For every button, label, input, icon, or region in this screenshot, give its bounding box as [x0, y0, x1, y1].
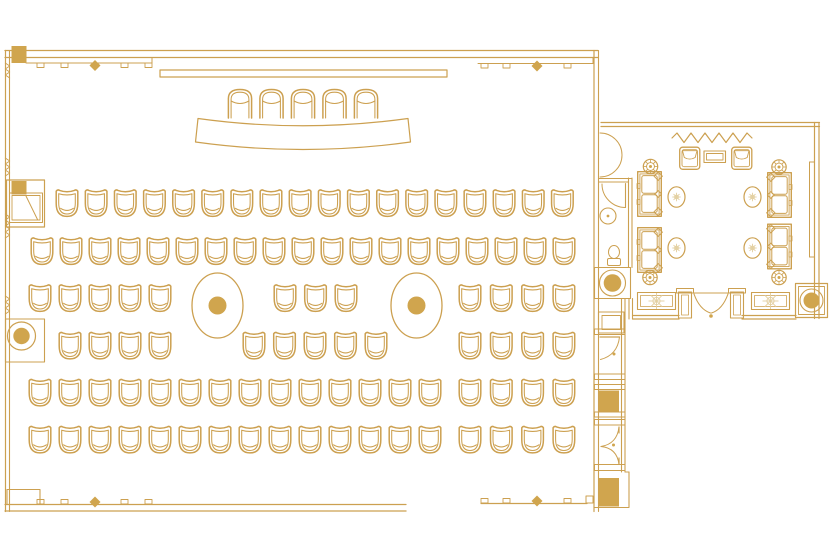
- path: [326, 101, 344, 104]
- path: [294, 92, 312, 118]
- path: [355, 256, 368, 258]
- rect: [772, 247, 787, 265]
- door-knob: [613, 353, 616, 356]
- projection-screen: [160, 70, 447, 77]
- path: [268, 256, 281, 258]
- lounge-sofa: [767, 173, 792, 218]
- theater-seat: [234, 238, 256, 264]
- path: [394, 445, 407, 447]
- path: [498, 208, 511, 210]
- path: [339, 351, 352, 353]
- path: [278, 351, 291, 353]
- toilet-tank: [608, 259, 621, 266]
- path: [495, 398, 508, 400]
- table-medallion: [649, 293, 665, 309]
- theater-seat: [419, 426, 441, 452]
- track-tab: [564, 499, 571, 504]
- theater-seat: [491, 332, 513, 358]
- path: [124, 303, 137, 305]
- head-table-chair: [228, 90, 251, 119]
- path: [231, 101, 249, 104]
- flower-medallion: [772, 270, 786, 284]
- theater-seating: [29, 190, 575, 453]
- path: [558, 398, 571, 400]
- theater-seat: [408, 238, 430, 264]
- theater-seat: [459, 285, 481, 311]
- path: [177, 208, 190, 210]
- theater-seat: [379, 238, 401, 264]
- path: [206, 208, 219, 210]
- theater-seat: [239, 426, 261, 452]
- door-frame: [595, 374, 626, 380]
- head-table-chair: [354, 90, 377, 119]
- path: [326, 92, 344, 118]
- theater-seat: [269, 426, 291, 452]
- table-medallion: [672, 193, 680, 201]
- door-arc: [601, 447, 619, 465]
- theater-seat: [491, 379, 513, 405]
- path: [181, 256, 194, 258]
- theater-seat: [553, 238, 575, 264]
- theater-seat: [119, 426, 141, 452]
- double-door-arc: [600, 133, 622, 155]
- theater-seat: [437, 238, 459, 264]
- entrance-pilaster: [682, 295, 689, 315]
- path: [94, 398, 107, 400]
- theater-seat: [522, 190, 544, 216]
- path: [352, 208, 365, 210]
- theater-seat: [552, 190, 574, 216]
- track-tab: [503, 64, 510, 69]
- theater-seat: [435, 190, 457, 216]
- theater-seat: [89, 238, 111, 264]
- head-table: [196, 119, 411, 150]
- sink-drain: [607, 215, 610, 218]
- path: [558, 351, 571, 353]
- theater-seat: [59, 332, 81, 358]
- path: [235, 208, 248, 210]
- lounge-sofa: [637, 172, 662, 217]
- theater-seat: [149, 426, 171, 452]
- theater-seat: [179, 426, 201, 452]
- theater-seat: [359, 379, 381, 405]
- path: [184, 445, 197, 447]
- rect: [642, 232, 657, 250]
- rect: [768, 173, 792, 218]
- theater-seat: [491, 285, 513, 311]
- flower-medallion: [643, 270, 657, 284]
- path: [294, 101, 312, 104]
- theater-seat: [260, 190, 282, 216]
- theater-seat: [89, 379, 111, 405]
- theater-seat: [60, 238, 82, 264]
- path: [154, 351, 167, 353]
- theater-seat: [292, 238, 314, 264]
- curtain-tieback: [709, 314, 713, 318]
- path: [154, 445, 167, 447]
- theater-seat: [119, 332, 141, 358]
- oval-column-core: [209, 297, 227, 315]
- lounge-sofa: [637, 228, 662, 273]
- path: [526, 445, 539, 447]
- theater-seat: [176, 238, 198, 264]
- path: [500, 256, 513, 258]
- flower-medallion: [643, 159, 657, 173]
- path: [244, 445, 257, 447]
- theater-seat: [522, 332, 544, 358]
- theater-seat: [289, 190, 311, 216]
- theater-seat: [553, 332, 575, 358]
- coat-rack-zigzag: [672, 133, 752, 143]
- path: [381, 208, 394, 210]
- path: [94, 256, 107, 258]
- theater-seat: [31, 238, 53, 264]
- door-knob: [612, 444, 615, 447]
- oval-column-core: [408, 297, 426, 315]
- theater-seat: [89, 332, 111, 358]
- path: [94, 445, 107, 447]
- path: [263, 101, 281, 104]
- track-tab: [37, 63, 44, 68]
- theater-seat: [149, 379, 171, 405]
- theater-seat: [359, 426, 381, 452]
- theater-seat: [173, 190, 195, 216]
- round-column-core: [604, 274, 622, 292]
- path: [34, 303, 47, 305]
- path: [410, 208, 423, 210]
- service-strip: [595, 133, 633, 508]
- theater-seat: [119, 285, 141, 311]
- theater-seat: [85, 190, 107, 216]
- theater-seat: [350, 238, 372, 264]
- theater-seat: [269, 379, 291, 405]
- theater-seat: [149, 332, 171, 358]
- path: [184, 398, 197, 400]
- track-diamond: [90, 497, 101, 508]
- track-tab: [145, 500, 152, 505]
- round-column-core: [13, 328, 29, 344]
- path: [154, 303, 167, 305]
- theater-seat: [335, 285, 357, 311]
- lounge-furniture: [637, 147, 792, 285]
- path: [526, 398, 539, 400]
- theater-seat: [459, 332, 481, 358]
- wall-block: [602, 316, 621, 330]
- path: [64, 351, 77, 353]
- path: [124, 445, 137, 447]
- double-door-arc: [600, 155, 622, 177]
- path: [64, 398, 77, 400]
- path: [340, 303, 353, 305]
- rect: [638, 172, 662, 217]
- path: [469, 208, 482, 210]
- path: [279, 303, 292, 305]
- track-tab: [61, 63, 68, 68]
- path: [309, 351, 322, 353]
- theater-seat: [231, 190, 253, 216]
- oval-side-table: [668, 238, 685, 258]
- track-tab: [61, 500, 68, 505]
- theater-seat: [389, 379, 411, 405]
- path: [64, 303, 77, 305]
- path: [123, 256, 136, 258]
- rect: [772, 177, 787, 195]
- theater-seat: [263, 238, 285, 264]
- path: [464, 303, 477, 305]
- flower-medallion: [772, 160, 786, 174]
- path: [495, 445, 508, 447]
- theater-seat: [304, 332, 326, 358]
- theater-seat: [406, 190, 428, 216]
- theater-seat: [493, 190, 515, 216]
- theater-seat: [305, 285, 327, 311]
- lounge-sofa: [767, 224, 792, 269]
- path: [263, 92, 281, 118]
- path: [94, 303, 107, 305]
- path: [364, 445, 377, 447]
- path: [94, 351, 107, 353]
- dia: [655, 247, 662, 254]
- path: [239, 256, 252, 258]
- theater-seat: [522, 285, 544, 311]
- theater-seat: [389, 426, 411, 452]
- path: [309, 303, 322, 305]
- path: [304, 398, 317, 400]
- rect: [772, 196, 787, 214]
- path: [464, 351, 477, 353]
- table-medallion: [763, 293, 779, 309]
- rect: [642, 195, 657, 213]
- rect: [638, 228, 662, 273]
- track-tab: [481, 64, 488, 69]
- table-medallion: [748, 244, 756, 252]
- path: [304, 445, 317, 447]
- path: [384, 256, 397, 258]
- entrance-pilaster: [734, 295, 741, 315]
- oval-side-table: [668, 187, 685, 207]
- theater-seat: [522, 379, 544, 405]
- door-frame: [595, 412, 626, 417]
- path: [64, 445, 77, 447]
- path: [735, 151, 750, 159]
- path: [61, 208, 74, 210]
- path: [323, 208, 336, 210]
- theater-seat: [553, 426, 575, 452]
- theater-seat: [459, 379, 481, 405]
- theater-seat: [466, 238, 488, 264]
- track-tab: [503, 499, 510, 504]
- path: [471, 256, 484, 258]
- theater-seat: [329, 379, 351, 405]
- path: [526, 303, 539, 305]
- head-table-chair: [291, 90, 314, 119]
- door-frame: [595, 385, 626, 390]
- path: [65, 256, 78, 258]
- theater-seat: [59, 285, 81, 311]
- theater-seat: [495, 238, 517, 264]
- theater-seat: [459, 426, 481, 452]
- rect: [682, 150, 698, 167]
- rect: [642, 176, 657, 194]
- path: [495, 351, 508, 353]
- path: [334, 398, 347, 400]
- theater-seat: [29, 285, 51, 311]
- theater-seat: [89, 426, 111, 452]
- theater-seat: [377, 190, 399, 216]
- track-diamond: [532, 61, 543, 72]
- rect: [770, 175, 789, 215]
- theater-seat: [365, 332, 387, 358]
- theater-seat: [209, 426, 231, 452]
- path: [442, 256, 455, 258]
- track-diamond: [90, 60, 101, 71]
- path: [297, 256, 310, 258]
- wall-column: [599, 391, 620, 413]
- theater-seat: [205, 238, 227, 264]
- theater-seat: [491, 426, 513, 452]
- track-diamond: [532, 496, 543, 507]
- track-tab: [121, 500, 128, 505]
- path: [394, 398, 407, 400]
- path: [495, 303, 508, 305]
- path: [274, 445, 287, 447]
- side-table: [707, 154, 724, 161]
- theater-seat: [29, 426, 51, 452]
- path: [464, 398, 477, 400]
- path: [527, 208, 540, 210]
- path: [36, 256, 49, 258]
- wall-step: [586, 496, 593, 503]
- path: [294, 208, 307, 210]
- theater-seat: [149, 285, 171, 311]
- door-frame: [595, 465, 626, 471]
- theater-seat: [59, 379, 81, 405]
- path: [274, 398, 287, 400]
- track-tab: [481, 499, 488, 504]
- rect: [734, 150, 750, 167]
- curtain-swag: [712, 294, 729, 313]
- theater-seat: [119, 379, 141, 405]
- path: [439, 208, 452, 210]
- theater-seat: [318, 190, 340, 216]
- theater-seat: [299, 379, 321, 405]
- path: [364, 398, 377, 400]
- path: [124, 351, 137, 353]
- theater-seat: [522, 426, 544, 452]
- path: [370, 351, 383, 353]
- theater-seat: [419, 379, 441, 405]
- door-arc: [601, 337, 620, 360]
- path: [231, 92, 249, 118]
- theater-seat: [56, 190, 78, 216]
- wall-column: [12, 46, 27, 63]
- path: [326, 256, 339, 258]
- theater-seat: [299, 426, 321, 452]
- door-frame: [595, 420, 626, 426]
- path: [556, 208, 569, 210]
- path: [558, 256, 571, 258]
- theater-seat: [553, 379, 575, 405]
- path: [529, 256, 542, 258]
- path: [34, 398, 47, 400]
- path: [214, 445, 227, 447]
- path: [413, 256, 426, 258]
- track-tab: [145, 63, 152, 68]
- round-column-core: [804, 293, 820, 309]
- path: [148, 208, 161, 210]
- table-medallion: [748, 193, 756, 201]
- dia: [767, 243, 774, 250]
- theater-seat: [209, 379, 231, 405]
- path: [683, 151, 698, 159]
- theater-seat: [239, 379, 261, 405]
- track-tab: [564, 64, 571, 69]
- toilet-bowl: [609, 246, 620, 259]
- path: [90, 208, 103, 210]
- stage-area: [160, 70, 447, 150]
- rect: [642, 251, 657, 269]
- curtain-swag: [694, 294, 711, 313]
- wall-column: [12, 181, 27, 195]
- lounge-foyer: [601, 123, 828, 320]
- dia: [767, 192, 774, 199]
- theater-seat: [29, 379, 51, 405]
- entrance-pilaster: [679, 292, 692, 318]
- door-arc: [601, 427, 619, 447]
- theater-seat: [348, 190, 370, 216]
- service-door: [10, 193, 43, 223]
- theater-seat: [118, 238, 140, 264]
- path: [124, 398, 137, 400]
- theater-seat: [274, 332, 296, 358]
- path: [265, 208, 278, 210]
- theater-seat: [553, 285, 575, 311]
- lounge-armchair: [732, 147, 752, 169]
- path: [210, 256, 223, 258]
- service-door-leaf: [26, 196, 38, 220]
- track-tab: [121, 63, 128, 68]
- theater-seat: [59, 426, 81, 452]
- theater-seat: [179, 379, 201, 405]
- theater-seat: [114, 190, 136, 216]
- path: [357, 92, 375, 118]
- path: [34, 445, 47, 447]
- path: [558, 445, 571, 447]
- path: [357, 101, 375, 104]
- path: [424, 445, 437, 447]
- rect: [768, 224, 792, 269]
- path: [214, 398, 227, 400]
- path: [526, 351, 539, 353]
- oval-side-table: [744, 187, 761, 207]
- theater-seat: [147, 238, 169, 264]
- table-medallion: [672, 244, 680, 252]
- wc-door-arc: [602, 184, 626, 208]
- theater-seat: [89, 285, 111, 311]
- path: [558, 303, 571, 305]
- theater-seat: [335, 332, 357, 358]
- wall-column: [599, 478, 620, 507]
- entrance-pilaster: [731, 292, 744, 318]
- path: [244, 398, 257, 400]
- theater-seat: [464, 190, 486, 216]
- path: [424, 398, 437, 400]
- theater-seat: [243, 332, 265, 358]
- rect: [640, 174, 659, 214]
- path: [154, 398, 167, 400]
- theater-seat: [274, 285, 296, 311]
- lounge-armchair: [680, 147, 700, 169]
